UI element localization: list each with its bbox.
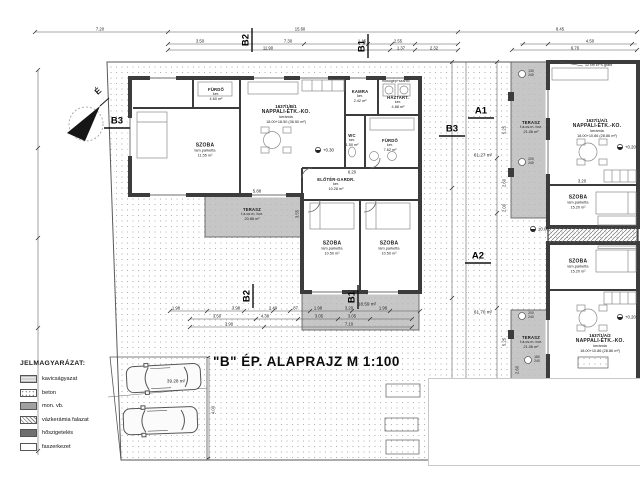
legend-swatch-insulation bbox=[20, 429, 37, 437]
party-wall bbox=[548, 227, 638, 243]
legend-swatch-timber bbox=[20, 443, 37, 451]
legend-item: kavicságyazat bbox=[20, 375, 170, 383]
legend-item: beton bbox=[20, 389, 170, 397]
legend-label: beton bbox=[42, 390, 56, 396]
legend-item: faszerkezet bbox=[20, 443, 170, 451]
legend-heading: JELMAGYARÁZAT: bbox=[20, 360, 170, 367]
legend: JELMAGYARÁZAT: kavicságyazat beton mon. … bbox=[20, 360, 170, 456]
north-arrow-icon bbox=[67, 98, 109, 141]
legend-label: vázkerámia falazat bbox=[42, 417, 89, 423]
legend-label: kavicságyazat bbox=[42, 376, 77, 382]
legend-swatch-reinforced-concrete bbox=[20, 402, 37, 410]
legend-swatch-gravel bbox=[20, 375, 37, 383]
legend-swatch-concrete bbox=[20, 389, 37, 397]
legend-item: vázkerámia falazat bbox=[20, 416, 170, 424]
drawing-title: "B" ÉP. ALAPRAJZ M 1:100 bbox=[213, 354, 400, 369]
legend-item: mon. vb. bbox=[20, 402, 170, 410]
legend-label: hőszigetelés bbox=[42, 430, 73, 436]
floor-plan-sheet: B2 B1 B3 B3 A1 A2 B2 B1 FÜRDŐ ker. 4.60 … bbox=[0, 0, 640, 480]
legend-label: faszerkezet bbox=[42, 444, 71, 450]
legend-swatch-masonry bbox=[20, 416, 37, 424]
legend-label: mon. vb. bbox=[42, 403, 63, 409]
blank-overlay-box bbox=[428, 378, 640, 466]
legend-item: hőszigetelés bbox=[20, 429, 170, 437]
